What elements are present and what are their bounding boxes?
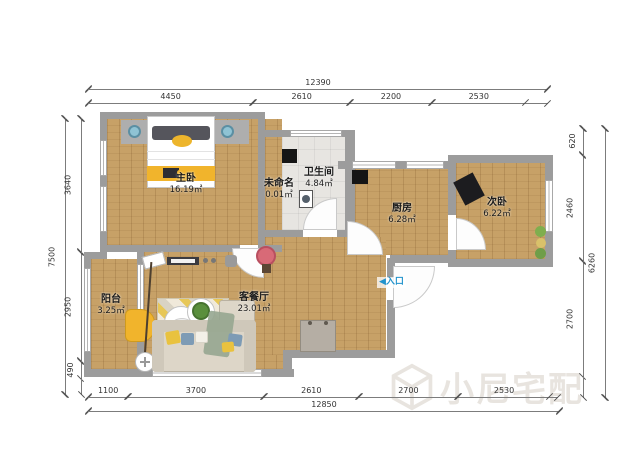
dim-top-segments: 4450261022002530 bbox=[88, 92, 548, 104]
room-name: 次卧 bbox=[483, 196, 510, 209]
window bbox=[100, 186, 107, 232]
dim-left-total: 7500 bbox=[52, 118, 66, 395]
window bbox=[352, 161, 396, 169]
label-unnamed: 未命名 0.01㎡ bbox=[264, 177, 294, 200]
room-name: 主卧 bbox=[170, 172, 203, 185]
dimension-segment: 6260 bbox=[592, 128, 606, 398]
window bbox=[406, 161, 444, 169]
window bbox=[100, 140, 107, 176]
water-heater[interactable] bbox=[282, 149, 297, 163]
entrance-arrow-icon: ◀ bbox=[379, 277, 386, 287]
dim-right-segments: 62024602700 bbox=[570, 128, 584, 398]
dimension-segment bbox=[570, 377, 584, 398]
speaker-dot bbox=[211, 258, 216, 263]
tv-screen bbox=[171, 259, 195, 263]
dimension-segment: 3700 bbox=[128, 386, 263, 398]
window bbox=[290, 130, 342, 137]
flower-plant[interactable] bbox=[256, 246, 276, 266]
dimension-segment: 4450 bbox=[88, 92, 253, 104]
room-area: 0.01㎡ bbox=[264, 190, 294, 200]
dim-bottom-segments: 11003700261027002530 bbox=[88, 386, 558, 398]
wall bbox=[100, 245, 240, 252]
dimension-segment: 3640 bbox=[68, 118, 82, 252]
bedside-lamp-left[interactable] bbox=[128, 125, 141, 138]
window bbox=[545, 180, 553, 232]
dimension-segment: 2460 bbox=[570, 155, 584, 261]
pillow-yellow bbox=[165, 330, 181, 345]
dimension-segment: 7500 bbox=[52, 118, 66, 395]
dim-right-total: 6260 bbox=[592, 128, 606, 398]
dimension-segment bbox=[550, 386, 558, 398]
duvet-line bbox=[147, 151, 215, 152]
dim-left-segments: 36402950490 bbox=[68, 118, 82, 395]
dimension-segment: 2950 bbox=[68, 252, 82, 361]
plant-small[interactable] bbox=[535, 248, 546, 259]
dimension-segment: 2530 bbox=[458, 386, 551, 398]
sofa-arm-right bbox=[244, 320, 256, 372]
window bbox=[84, 268, 91, 352]
washing-machine-door bbox=[302, 195, 310, 203]
wall bbox=[390, 255, 456, 263]
room-area: 16.19㎡ bbox=[170, 185, 203, 195]
stove[interactable] bbox=[352, 170, 368, 184]
window bbox=[137, 264, 144, 314]
room-name: 客餐厅 bbox=[238, 291, 271, 304]
pillow-yellow bbox=[222, 341, 235, 352]
room-area: 23.01㎡ bbox=[238, 304, 271, 314]
plant-small[interactable] bbox=[536, 238, 546, 248]
room-name: 卫生间 bbox=[304, 166, 334, 179]
entrance-label: 入口 bbox=[386, 277, 404, 287]
dimension-segment: 2610 bbox=[264, 386, 359, 398]
wall bbox=[448, 155, 553, 163]
label-bathroom: 卫生间 4.84㎡ bbox=[304, 166, 334, 189]
dimension-segment: 2610 bbox=[253, 92, 350, 104]
dimension-segment: 12850 bbox=[88, 400, 560, 412]
dim-bottom-total: 12850 bbox=[88, 400, 560, 412]
entrance-marker[interactable]: ◀入口 bbox=[377, 277, 406, 288]
label-kitchen: 厨房 6.28㎡ bbox=[388, 202, 415, 225]
room-area: 4.84㎡ bbox=[304, 179, 334, 189]
dimension-segment bbox=[526, 92, 548, 104]
cabinet-handle bbox=[324, 321, 328, 325]
room-area: 6.28㎡ bbox=[388, 215, 415, 225]
label-balcony: 阳台 3.25㎡ bbox=[97, 293, 124, 316]
wall bbox=[265, 230, 303, 237]
dimension-segment: 620 bbox=[570, 128, 584, 155]
dimension-segment: 12390 bbox=[88, 78, 548, 90]
flower-vase bbox=[262, 264, 271, 273]
room-name: 厨房 bbox=[388, 202, 415, 215]
shoe-cabinet[interactable] bbox=[300, 320, 336, 352]
wall bbox=[448, 259, 553, 267]
room-area: 3.25㎡ bbox=[97, 306, 124, 316]
sofa-arm-left bbox=[152, 320, 164, 372]
dimension-segment: 1100 bbox=[88, 386, 128, 398]
pillow-blue bbox=[181, 333, 194, 345]
dimension-segment: 2700 bbox=[570, 261, 584, 377]
speaker[interactable] bbox=[225, 255, 237, 267]
label-second-bedroom: 次卧 6.22㎡ bbox=[483, 196, 510, 219]
room-name: 阳台 bbox=[97, 293, 124, 306]
speaker-dot bbox=[203, 258, 208, 263]
pillow-white bbox=[195, 331, 208, 343]
room-name: 未命名 bbox=[264, 177, 294, 190]
dimension-segment: 2200 bbox=[350, 92, 432, 104]
floor-plan-canvas: 12390 4450261022002530 11003700261027002… bbox=[0, 0, 640, 466]
label-living-dining: 客餐厅 23.01㎡ bbox=[238, 291, 271, 314]
wall bbox=[337, 230, 345, 237]
dim-top-total: 12390 bbox=[88, 78, 548, 90]
plant-small[interactable] bbox=[535, 226, 546, 237]
wall bbox=[84, 252, 107, 259]
bed-cushion bbox=[172, 135, 192, 147]
label-master-bedroom: 主卧 16.19㎡ bbox=[170, 172, 203, 195]
cabinet-handle bbox=[308, 321, 312, 325]
dimension-segment: 2530 bbox=[432, 92, 526, 104]
dimension-segment: 2700 bbox=[359, 386, 458, 398]
dimension-segment bbox=[68, 379, 82, 395]
duvet-line bbox=[147, 159, 215, 160]
dimension-segment: 490 bbox=[68, 361, 82, 379]
bedside-lamp-right[interactable] bbox=[221, 125, 234, 138]
armchair[interactable] bbox=[125, 309, 155, 342]
room-area: 6.22㎡ bbox=[483, 209, 510, 219]
